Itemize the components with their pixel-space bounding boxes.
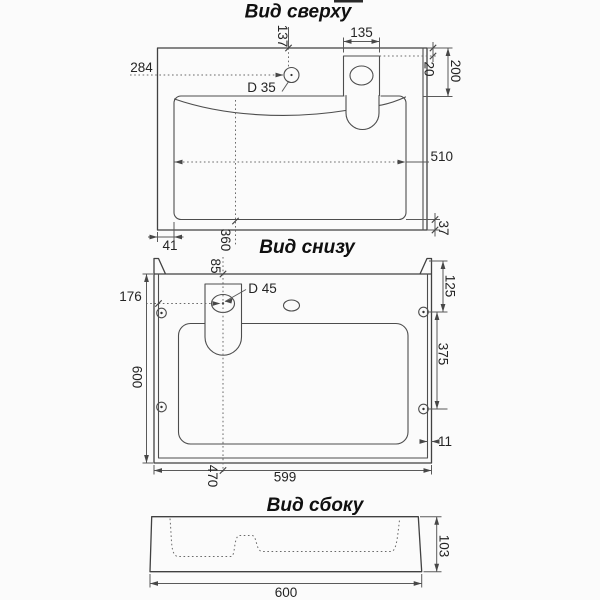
dim-37-label: 37 [436,220,451,235]
top-view-title: Вид сверху [245,2,353,23]
bottom-view: Вид снизу D 45 85 [119,237,457,487]
dim-600-side-label: 600 [275,585,298,600]
dim-176-label: 176 [119,289,142,304]
dim-d35-label: D 35 [247,80,276,95]
bottom-view-outline [154,259,432,464]
overflow-hole-center [290,74,292,76]
bottom-recess [179,324,409,445]
basin-front-curve [175,97,406,115]
faucet-hole [350,66,373,85]
dim-600-label: 600 [130,366,145,389]
dim-11-label: 11 [438,434,452,449]
dim-284-label: 284 [130,60,153,75]
top-view-basin [174,96,406,220]
dim-125-label: 125 [443,275,458,298]
dim-375-label: 375 [436,343,451,366]
bottom-view-lip [159,274,428,458]
dim-20-label: 20 [422,61,437,76]
dim-103-label: 103 [437,535,452,558]
overflow-hole-bottom [284,300,300,311]
d35-leader-line [282,81,289,92]
dim-200-label: 200 [448,60,463,83]
dim-599-label: 599 [274,470,297,485]
top-view: Вид сверху D 35 284 137 135 [130,2,463,254]
side-view: Вид сбоку 600 103 [150,495,452,600]
dim-41-label: 41 [162,238,177,253]
faucet-deck [344,56,380,96]
technical-drawing-sheet: Вид сверху D 35 284 137 135 [0,0,600,600]
side-view-title: Вид сбоку [267,495,365,516]
dim-360-label: 360 [218,229,233,252]
dim-d45-label: D 45 [248,281,277,296]
dim-510-label: 510 [431,149,454,164]
dim-135-label: 135 [350,25,373,40]
dim-470-label: 470 [205,465,220,488]
side-view-outline [150,517,422,572]
washbasin-drawing: Вид сверху D 35 284 137 135 [0,0,600,600]
dim-85-label: 85 [208,258,223,273]
faucet-deck-recess [346,96,379,130]
dim-137-label: 137 [275,25,290,48]
side-view-basin-profile [170,519,400,557]
bottom-view-title: Вид снизу [259,237,356,258]
